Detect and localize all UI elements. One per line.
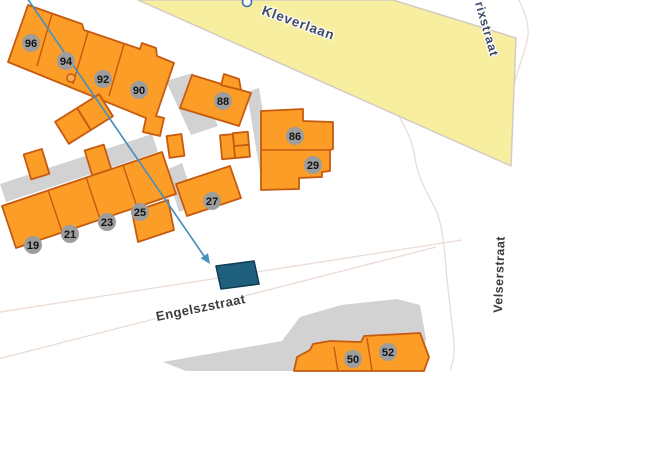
house-number-badge-23[interactable]: 23 [98, 213, 116, 231]
shed-left[interactable] [24, 149, 50, 179]
house-number-badge-94[interactable]: 94 [57, 52, 75, 70]
house-number-badge-50[interactable]: 50 [344, 350, 362, 368]
shed-cluster-lower[interactable] [234, 145, 250, 158]
house-number-badge-52[interactable]: 52 [379, 343, 397, 361]
svg-text:96: 96 [25, 38, 37, 50]
shed-center[interactable] [167, 134, 185, 158]
house-number-badge-96[interactable]: 96 [22, 34, 40, 52]
poi-ring-icon[interactable] [243, 0, 252, 7]
house-number-badge-19[interactable]: 19 [24, 236, 42, 254]
house-number-badge-92[interactable]: 92 [94, 70, 112, 88]
shed-pair-below-94[interactable] [55, 94, 113, 144]
house-number-badge-90[interactable]: 90 [130, 81, 148, 99]
house-number-badge-21[interactable]: 21 [61, 225, 79, 243]
house-number-badge-86[interactable]: 86 [286, 127, 304, 145]
svg-text:94: 94 [60, 56, 73, 68]
house-number-badge-25[interactable]: 25 [131, 203, 149, 221]
house-number-badge-27[interactable]: 27 [203, 192, 221, 210]
svg-text:19: 19 [27, 240, 39, 252]
svg-text:29: 29 [307, 160, 319, 172]
map-canvas[interactable]: 96 94 92 90 88 86 29 27 25 23 21 19 50 5… [0, 0, 647, 454]
street-label-velserstraat: Velserstraat [491, 235, 508, 313]
house-number-badge-88[interactable]: 88 [214, 92, 232, 110]
svg-text:21: 21 [64, 229, 76, 241]
svg-text:50: 50 [347, 354, 359, 366]
svg-text:90: 90 [133, 85, 145, 97]
svg-text:23: 23 [101, 217, 113, 229]
shed-cluster-center[interactable] [220, 132, 250, 159]
svg-text:52: 52 [382, 347, 394, 359]
svg-text:25: 25 [134, 207, 146, 219]
selection-highlight[interactable] [216, 261, 259, 289]
marker-dot[interactable] [67, 74, 75, 82]
shed-cluster-upper[interactable] [233, 132, 249, 146]
map-viewport: 96 94 92 90 88 86 29 27 25 23 21 19 50 5… [0, 0, 647, 454]
svg-text:92: 92 [97, 74, 109, 86]
house-number-badge-29[interactable]: 29 [304, 156, 322, 174]
leader-arrowhead [201, 253, 210, 264]
svg-text:86: 86 [289, 131, 301, 143]
svg-text:88: 88 [217, 96, 229, 108]
street-label-engelszstraat: Engelszstraat [155, 291, 247, 324]
svg-text:27: 27 [206, 196, 218, 208]
